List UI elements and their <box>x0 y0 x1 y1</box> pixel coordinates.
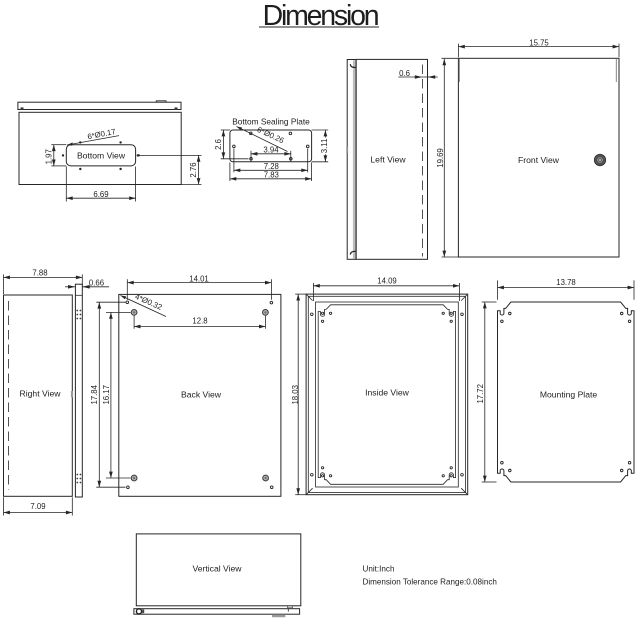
svg-text:Right View: Right View <box>20 388 62 398</box>
svg-text:14.01: 14.01 <box>189 274 209 283</box>
svg-text:0.6: 0.6 <box>399 69 410 78</box>
svg-text:6*Ø0.26: 6*Ø0.26 <box>256 125 286 145</box>
svg-text:19.69: 19.69 <box>436 148 445 168</box>
svg-text:Inside View: Inside View <box>365 388 410 398</box>
svg-text:16.17: 16.17 <box>102 385 111 405</box>
svg-text:7.88: 7.88 <box>32 269 47 278</box>
svg-text:14.09: 14.09 <box>377 276 397 285</box>
svg-text:3.11: 3.11 <box>320 139 329 154</box>
svg-text:Bottom Sealing Plate: Bottom Sealing Plate <box>232 117 310 127</box>
svg-text:Front View: Front View <box>518 155 560 165</box>
svg-text:6.69: 6.69 <box>93 190 108 199</box>
svg-text:15.75: 15.75 <box>529 38 549 47</box>
svg-text:0.66: 0.66 <box>89 279 104 288</box>
svg-text:Mounting Plate: Mounting Plate <box>540 389 598 399</box>
svg-text:Back View: Back View <box>181 390 222 400</box>
svg-text:17.84: 17.84 <box>90 384 99 404</box>
svg-text:Dimension Tolerance Range:0.08: Dimension Tolerance Range:0.08inch <box>363 578 497 587</box>
svg-text:Vertical View: Vertical View <box>192 563 242 573</box>
svg-text:1.97: 1.97 <box>45 149 54 164</box>
svg-text:7.83: 7.83 <box>264 171 279 180</box>
svg-text:12.8: 12.8 <box>192 317 207 326</box>
svg-text:Unit:Inch: Unit:Inch <box>363 564 395 573</box>
svg-text:18.03: 18.03 <box>291 385 300 405</box>
svg-text:3.94: 3.94 <box>263 146 279 155</box>
svg-text:2.76: 2.76 <box>189 162 198 177</box>
svg-text:Bottom View: Bottom View <box>77 151 126 161</box>
svg-text:7.09: 7.09 <box>30 502 45 511</box>
svg-text:2.6: 2.6 <box>214 139 223 150</box>
svg-text:17.72: 17.72 <box>476 384 485 404</box>
svg-text:13.78: 13.78 <box>556 278 576 287</box>
svg-text:Left View: Left View <box>370 154 406 164</box>
